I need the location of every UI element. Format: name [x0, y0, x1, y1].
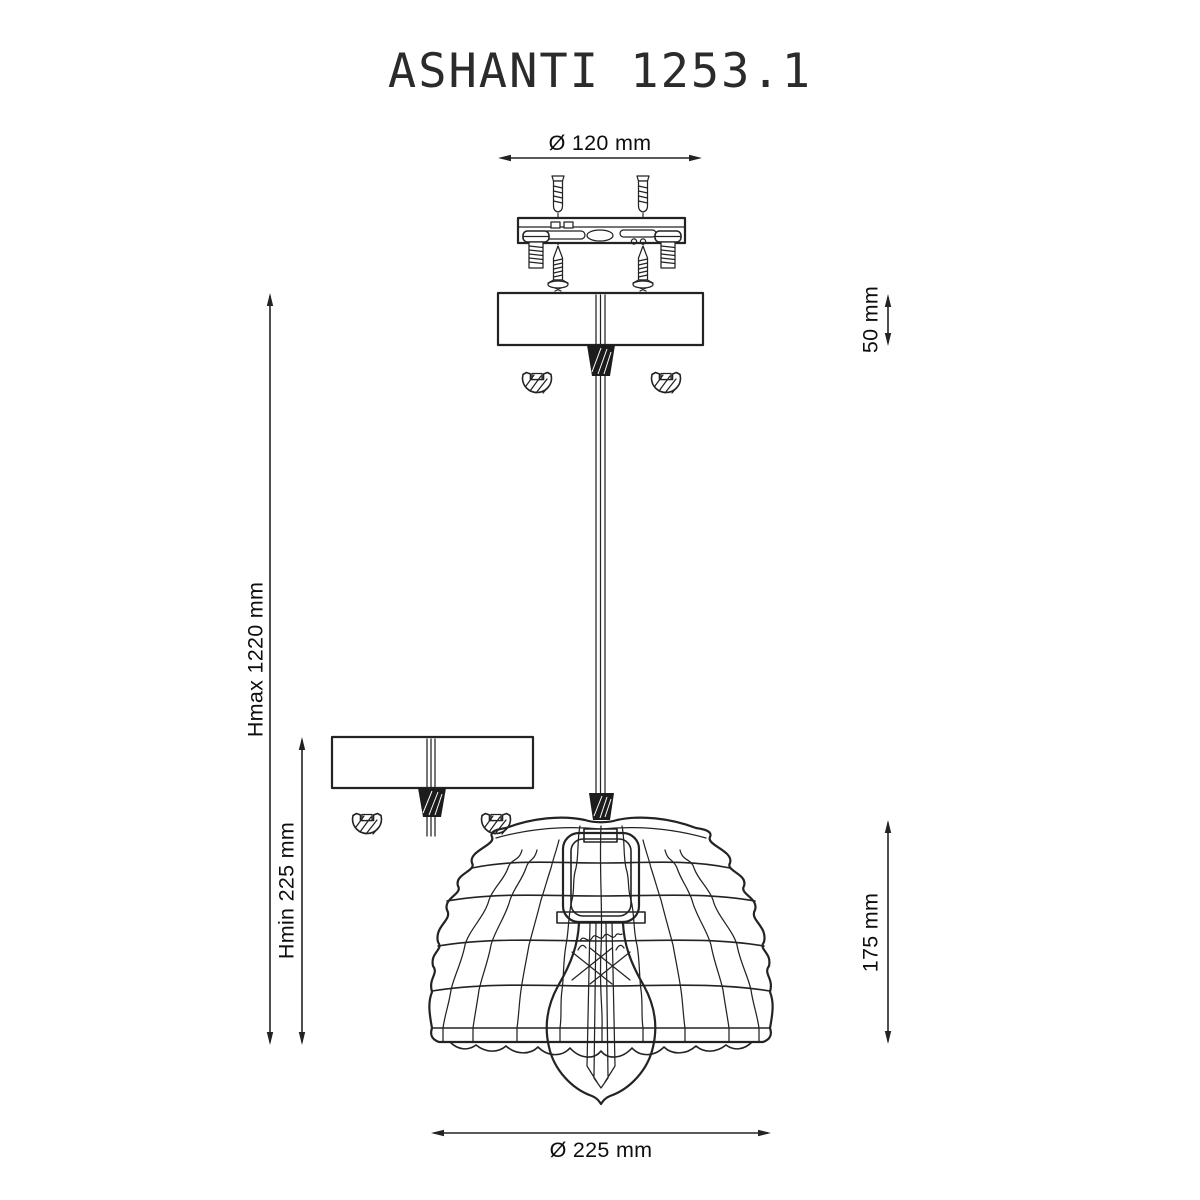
dimension-shade-height-arrow	[885, 820, 891, 1044]
shade-ribs	[443, 826, 759, 1042]
mounting-bolt-left	[523, 231, 549, 268]
shade-strain-relief	[589, 793, 614, 820]
side-view-cap-nut-left	[353, 814, 382, 835]
dimension-shade-diameter-arrow	[431, 1130, 771, 1136]
mounting-screw-right	[633, 246, 653, 291]
shade-diameter-label: Ø 225 mm	[501, 1138, 701, 1163]
canopy-height-label: 50 mm	[859, 275, 884, 365]
mounting-bracket	[518, 176, 685, 291]
min-height-label: Hmin 225 mm	[275, 816, 300, 966]
wall-anchor-left	[552, 176, 564, 212]
technical-drawing-page: ASHANTI 1253.1	[0, 0, 1200, 1200]
shade-height-label: 175 mm	[859, 883, 884, 983]
canopy-side-view	[332, 737, 533, 836]
max-height-label: Hmax 1220 mm	[244, 575, 269, 745]
cap-nut-right	[652, 373, 681, 394]
cap-nut-left	[523, 373, 552, 394]
mounting-bolt-right	[655, 231, 681, 268]
shade-bottom-wave	[450, 1042, 752, 1057]
plate-diameter-label: Ø 120 mm	[500, 131, 700, 156]
lamp-dimension-drawing	[0, 0, 1200, 1200]
dimension-canopy-height-arrow	[885, 294, 891, 346]
mounting-screw-left	[548, 246, 568, 291]
dimension-min-height-arrow	[299, 737, 305, 1045]
wall-anchor-right	[637, 176, 649, 212]
canopy-strain-relief	[587, 345, 615, 376]
